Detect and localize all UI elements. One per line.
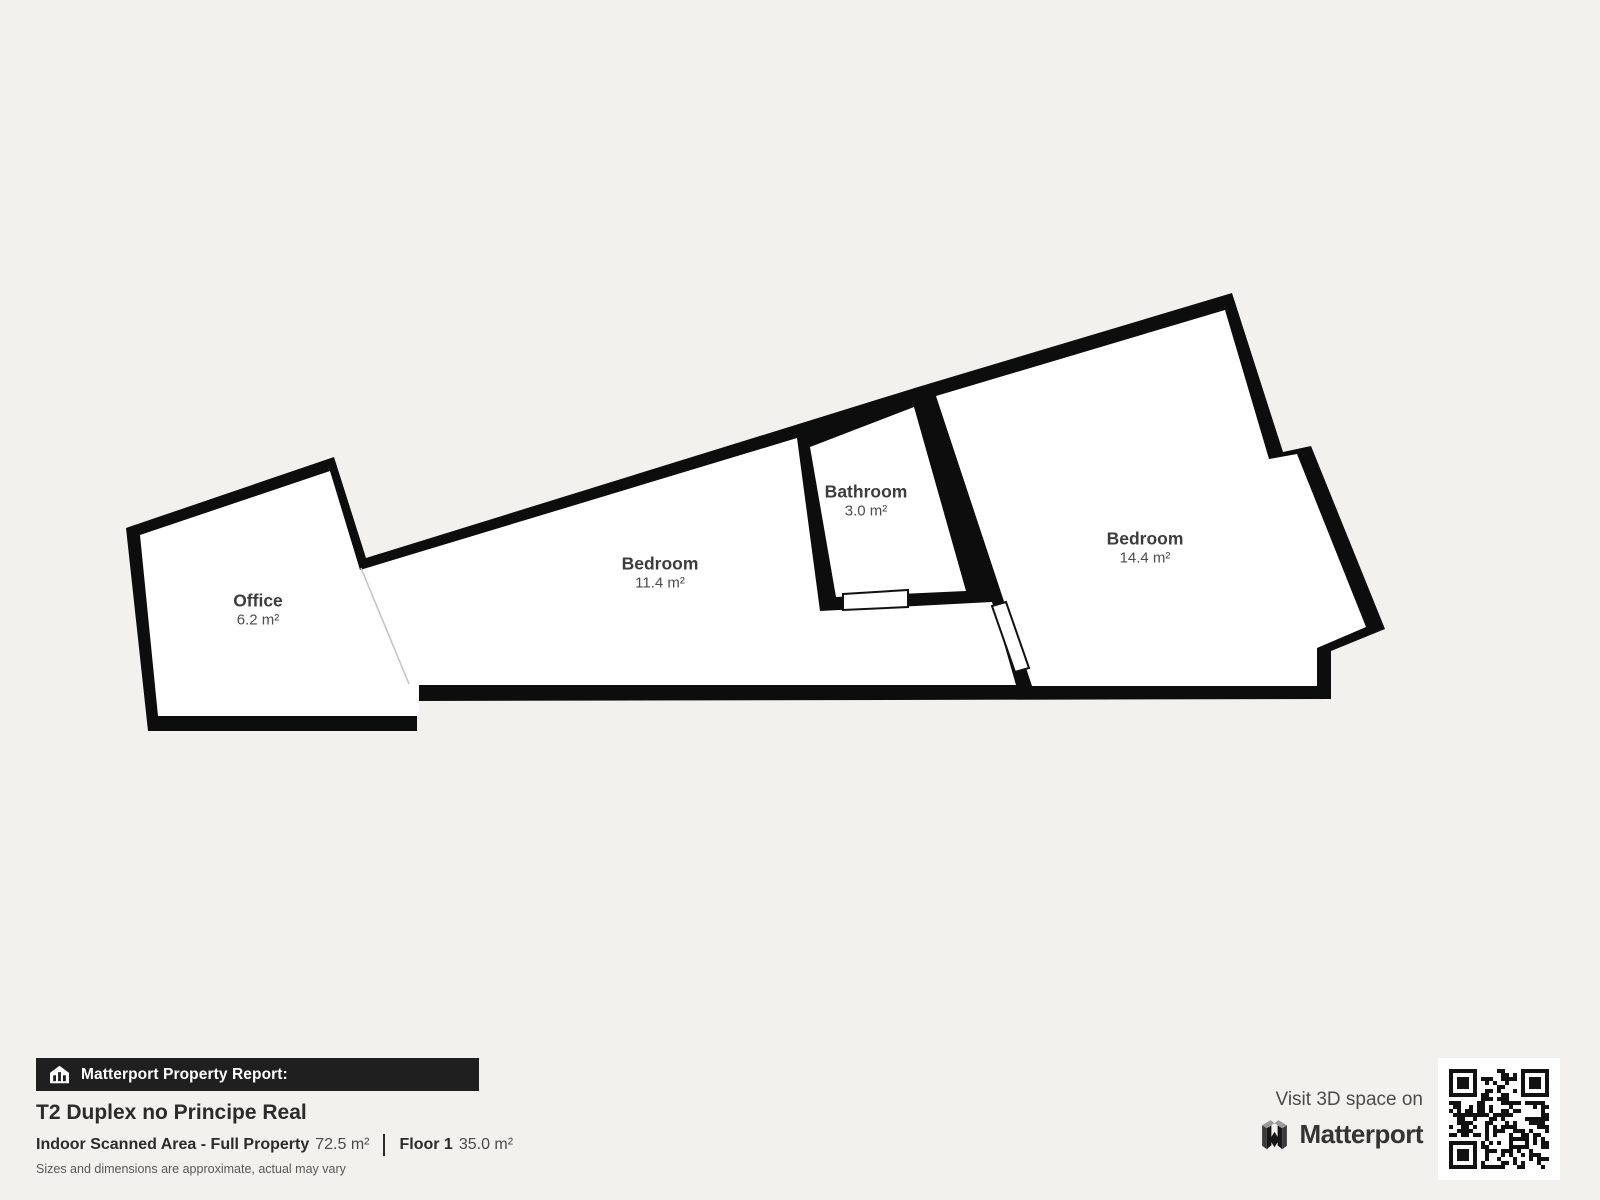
floor-label: Floor 1	[399, 1136, 452, 1154]
brand-wordmark: Matterport	[1299, 1119, 1423, 1150]
bathroom-door	[843, 590, 908, 610]
report-header-bar: Matterport Property Report:	[36, 1058, 479, 1091]
house-chart-icon	[49, 1065, 70, 1084]
property-title: T2 Duplex no Principe Real	[36, 1101, 307, 1125]
meta-divider	[383, 1134, 385, 1156]
disclaimer-text: Sizes and dimensions are approximate, ac…	[36, 1162, 346, 1176]
visit-3d-text: Visit 3D space on	[1259, 1089, 1423, 1111]
report-bar-label: Matterport Property Report:	[81, 1066, 288, 1084]
floor-value: 35.0 m²	[459, 1136, 513, 1154]
qr-card	[1438, 1058, 1560, 1180]
scan-area-value: 72.5 m²	[315, 1136, 369, 1154]
scan-area-label: Indoor Scanned Area - Full Property	[36, 1136, 309, 1154]
promo-block: Visit 3D space on Matterport	[1259, 1089, 1423, 1151]
scan-meta-row: Indoor Scanned Area - Full Property 72.5…	[36, 1134, 513, 1156]
property-report-page: Office 6.2 m² Bedroom 11.4 m² Bathroom 3…	[0, 0, 1600, 1200]
matterport-logo-icon	[1259, 1118, 1290, 1151]
qr-code	[1449, 1069, 1549, 1169]
brand-row: Matterport	[1259, 1118, 1423, 1151]
floor-plan	[0, 0, 1600, 1200]
